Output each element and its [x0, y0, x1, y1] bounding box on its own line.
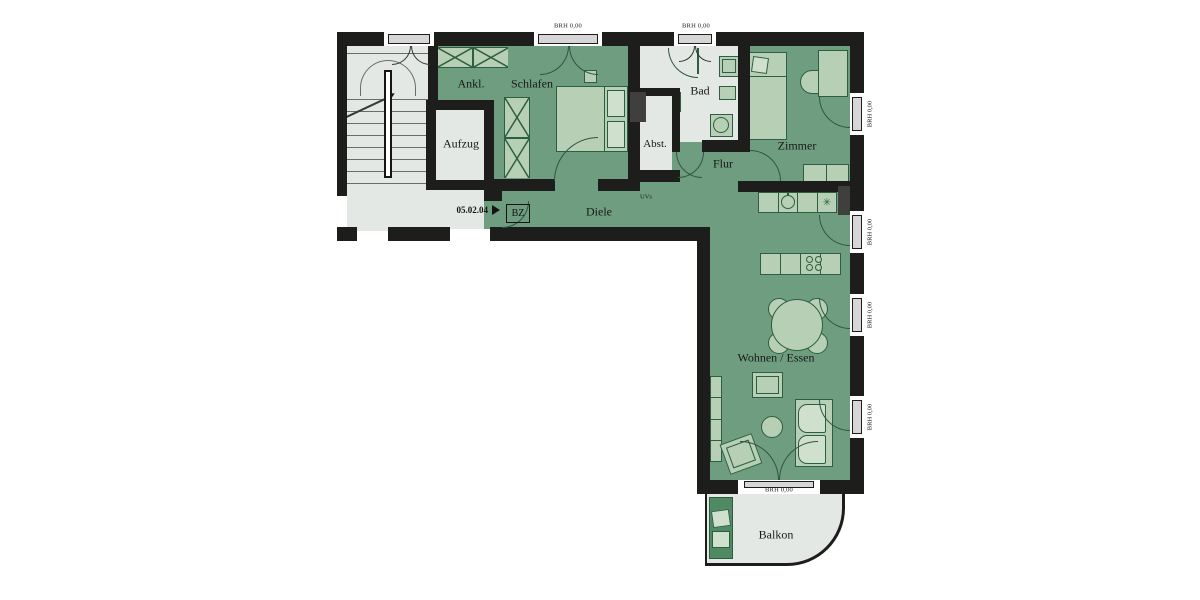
stair-step [347, 183, 428, 184]
faucet [787, 192, 789, 196]
sideboard-cell [711, 377, 721, 398]
dining-table [771, 299, 823, 351]
floor-plan: ✳ [0, 0, 1200, 600]
kitchen-island [760, 253, 841, 275]
wall [500, 179, 555, 191]
room-label-zimmer: Zimmer [778, 139, 817, 154]
bed-divider-line [604, 87, 605, 151]
duct-shaft [838, 186, 850, 215]
unit-number-label: 05.02.04 [420, 205, 488, 215]
kitchen-window [852, 215, 862, 249]
entry-badge: BZ [506, 204, 530, 223]
room-label-wohnen-essen: Wohnen / Essen [737, 351, 814, 366]
counter-cell [761, 254, 781, 274]
wall [337, 227, 357, 241]
tv-table-inner [756, 376, 779, 394]
wall [628, 170, 680, 182]
wall [697, 227, 710, 494]
sill-height-label: BRH 0,00 [554, 23, 582, 30]
appliance-icon: ✳ [823, 198, 831, 209]
wardrobe [504, 97, 530, 178]
wardrobe-cell [473, 47, 508, 68]
sill-height-label: BRH 0,00 [765, 487, 793, 494]
kitchen-sink [781, 195, 795, 209]
label-uvs: UVs [640, 194, 652, 201]
ottoman [761, 416, 783, 438]
sill-height-label: BRH 0,00 [867, 404, 874, 430]
room-label-ankleide: Ankl. [458, 77, 485, 92]
sill-height-label: BRH 0,00 [682, 23, 710, 30]
sink-basin [722, 59, 736, 73]
sill-height-label: BRH 0,00 [867, 219, 874, 245]
sideboard-cell [711, 420, 721, 441]
pillow [607, 90, 625, 117]
wall [388, 227, 450, 241]
sill-height-label: BRH 0,00 [867, 302, 874, 328]
washing-machine-drum [713, 117, 729, 133]
cooktop-burner [815, 264, 822, 271]
wall [697, 480, 740, 494]
wardrobe [437, 47, 508, 68]
wall [738, 181, 850, 192]
counter-cell [781, 254, 801, 274]
cooktop-burner [806, 256, 813, 263]
wall [818, 480, 864, 494]
desk-chair [800, 70, 819, 94]
sideboard-cell [711, 398, 721, 419]
living-window [852, 400, 862, 434]
bathroom-window [678, 34, 712, 44]
room-label-diele: Diele [586, 205, 612, 220]
room-label-bad: Bad [690, 84, 709, 99]
wardrobe-cell [504, 97, 530, 138]
shelf-cell [804, 165, 827, 182]
counter-cell [821, 254, 840, 274]
duct-shaft [630, 92, 646, 122]
bedroom-window [538, 34, 598, 44]
cooktop-burner [815, 256, 822, 263]
pillow [607, 121, 625, 148]
room-label-flur: Flur [713, 157, 733, 172]
wall [738, 46, 750, 152]
wardrobe-cell [504, 138, 530, 178]
wardrobe-cell [437, 47, 473, 68]
wall [490, 227, 710, 241]
dining-window [852, 298, 862, 332]
wall [702, 140, 750, 152]
counter-cell [798, 193, 818, 212]
wall [484, 179, 502, 201]
room-label-balkon: Balkon [759, 528, 794, 543]
desk [818, 50, 848, 97]
cooktop-burner [806, 264, 813, 271]
sill-height-label: BRH 0,00 [867, 101, 874, 127]
pillow [751, 56, 769, 74]
wall [337, 32, 347, 196]
room-label-schlafen: Schlafen [511, 77, 553, 92]
lounge-cushion [711, 509, 731, 528]
room-label-aufzug: Aufzug [443, 137, 479, 152]
lounge-cushion [712, 531, 730, 548]
counter-cell [759, 193, 779, 212]
stair-divider [384, 70, 392, 178]
toilet [719, 86, 736, 100]
room-label-abstellraum: Abst. [643, 138, 667, 150]
stairwell-door [388, 34, 430, 44]
bed-fold-line [750, 76, 786, 77]
room-window [852, 97, 862, 131]
entry-arrow-icon [492, 205, 500, 215]
wall [672, 88, 680, 152]
shelf-cell [827, 165, 849, 182]
